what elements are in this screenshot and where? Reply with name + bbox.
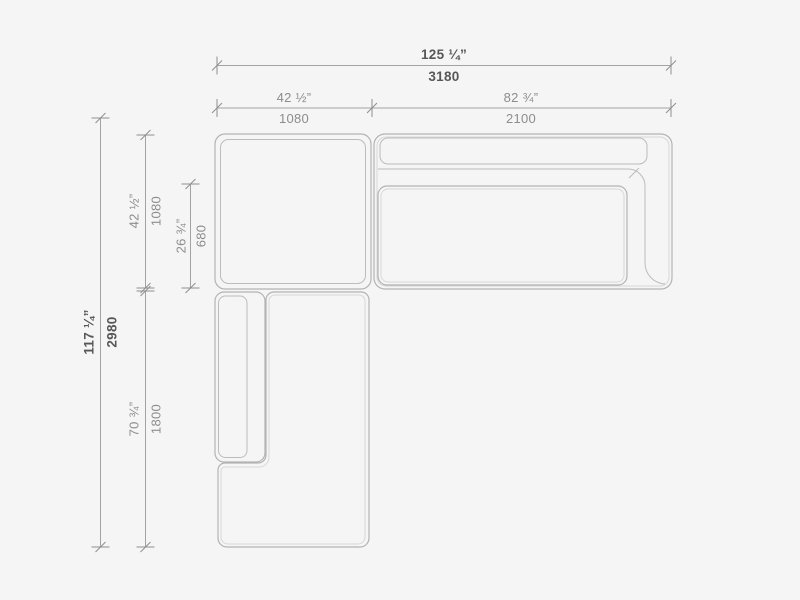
chaise-backrest-outline xyxy=(215,292,265,462)
chaise-module xyxy=(215,292,369,547)
chaise-seat-inset-line xyxy=(221,295,365,544)
sofa-seat-cushion-inset xyxy=(381,189,624,282)
left-module-width-inches-label: 42 ½” xyxy=(277,90,312,105)
seat-depth-mm-label: 680 xyxy=(194,225,209,248)
overall-depth-inches-label: 117 ¼” xyxy=(82,309,97,354)
corner-module-outline xyxy=(215,134,371,289)
sofa-plan xyxy=(215,134,672,547)
sofa-dimension-drawing: 125 ¼” 3180 42 ½” 1080 82 ¾” 2100 117 ¼”… xyxy=(0,0,800,600)
dimension-labels: 125 ¼” 3180 42 ½” 1080 82 ¾” 2100 117 ¼”… xyxy=(82,47,539,436)
right-module-width-mm-label: 2100 xyxy=(506,111,536,126)
seat-depth-inches-label: 26 ¾” xyxy=(174,219,189,254)
overall-width-inches-label: 125 ¼” xyxy=(421,47,467,62)
chaise-length-inches-label: 70 ¾” xyxy=(127,402,142,437)
corner-module xyxy=(215,134,371,289)
overall-depth-mm-label: 2980 xyxy=(105,316,120,347)
sofa-seat-cushion xyxy=(378,186,627,285)
chaise-backrest-cushion xyxy=(219,296,248,458)
left-module-width-mm-label: 1080 xyxy=(279,111,309,126)
drawing-canvas: 125 ¼” 3180 42 ½” 1080 82 ¾” 2100 117 ¼”… xyxy=(0,0,800,600)
chaise-seat-outline xyxy=(218,292,369,547)
sofa-module xyxy=(374,134,672,289)
chaise-length-mm-label: 1800 xyxy=(149,404,164,434)
overall-width-mm-label: 3180 xyxy=(428,69,459,84)
right-module-width-inches-label: 82 ¾” xyxy=(504,90,539,105)
corner-module-cushion xyxy=(221,140,366,284)
top-module-depth-inches-label: 42 ½” xyxy=(127,194,142,229)
sofa-module-inset-line xyxy=(377,137,669,286)
dimension-lines xyxy=(92,57,677,553)
sofa-back-cushion xyxy=(380,138,647,164)
top-module-depth-mm-label: 1080 xyxy=(149,196,164,226)
